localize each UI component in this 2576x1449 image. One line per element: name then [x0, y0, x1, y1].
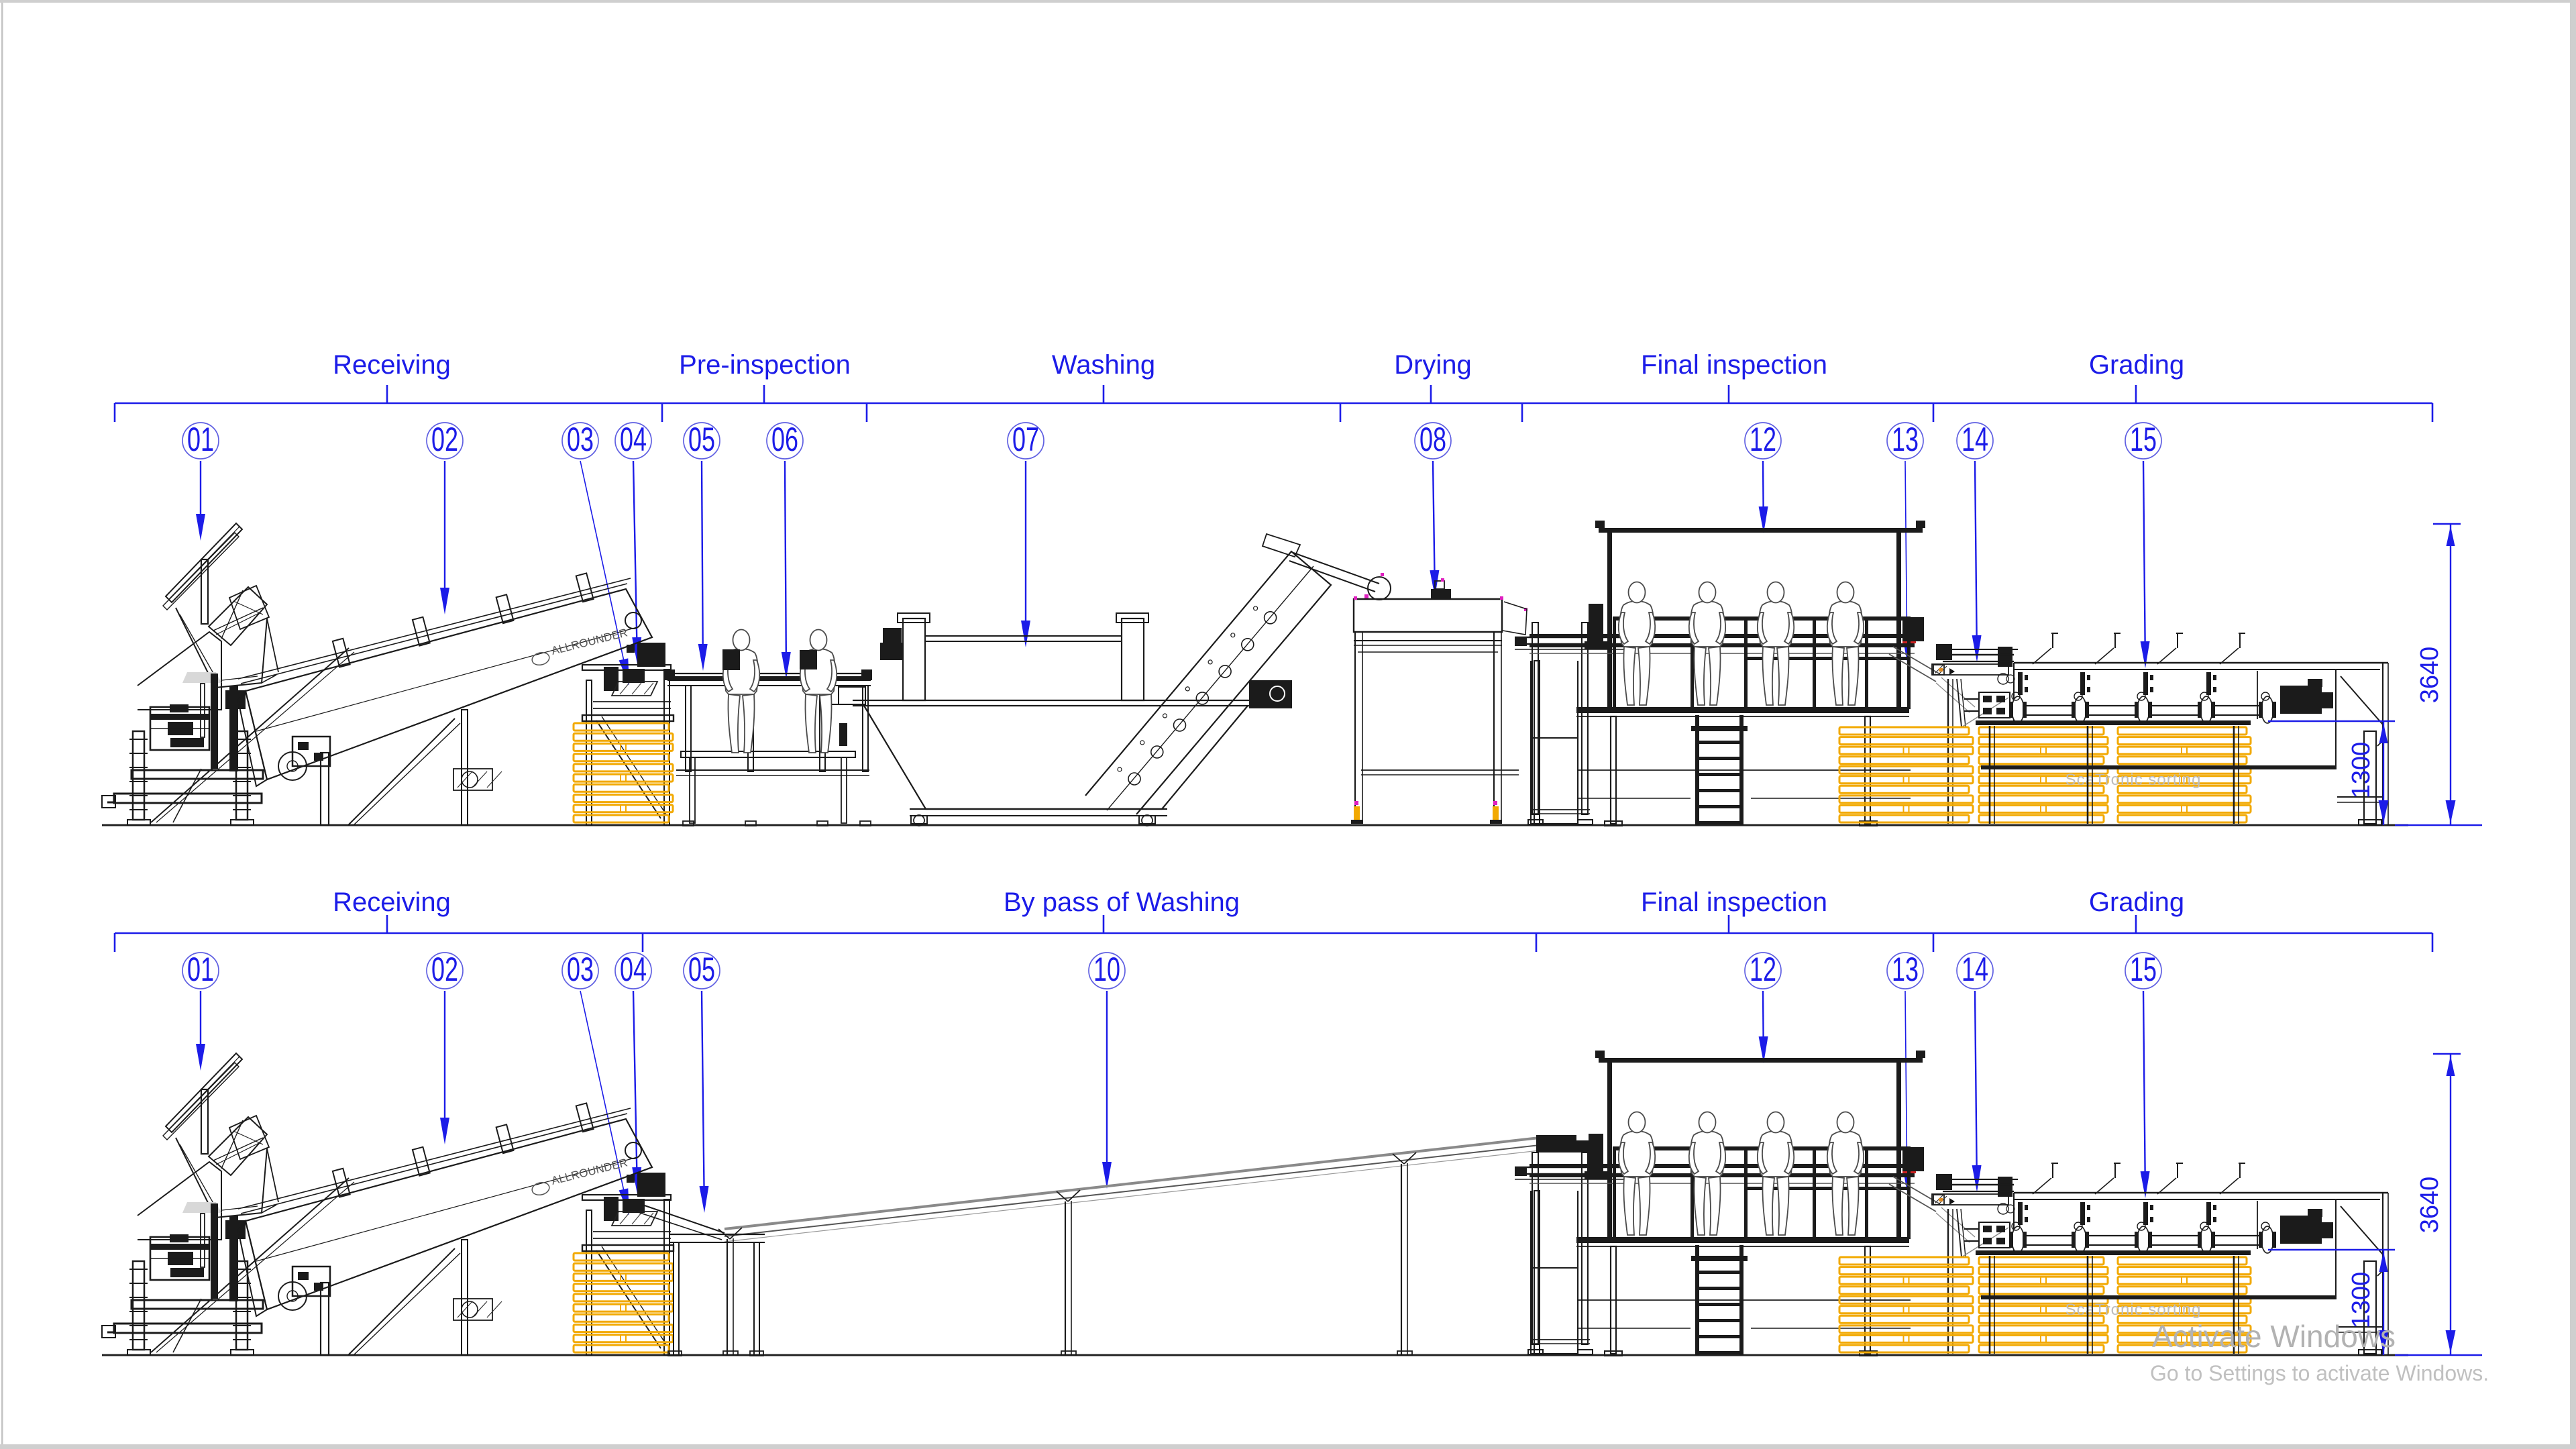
svg-text:Pre-inspection: Pre-inspection — [679, 350, 851, 380]
svg-text:10: 10 — [1093, 951, 1120, 988]
svg-text:04: 04 — [620, 421, 647, 458]
svg-text:Final inspection: Final inspection — [1641, 888, 1827, 917]
svg-text:1300: 1300 — [2347, 742, 2375, 799]
svg-text:01: 01 — [187, 951, 214, 988]
svg-text:3640: 3640 — [2416, 647, 2444, 704]
svg-text:06: 06 — [771, 421, 798, 458]
svg-text:Grading: Grading — [2089, 888, 2184, 917]
svg-text:15: 15 — [2130, 421, 2157, 458]
svg-text:02: 02 — [431, 951, 458, 988]
svg-text:Washing: Washing — [1052, 350, 1155, 380]
svg-text:Final inspection: Final inspection — [1641, 350, 1827, 380]
svg-text:Receiving: Receiving — [333, 350, 451, 380]
svg-text:04: 04 — [620, 951, 647, 988]
svg-text:07: 07 — [1012, 421, 1039, 458]
svg-text:12: 12 — [1750, 421, 1776, 458]
svg-text:08: 08 — [1419, 421, 1446, 458]
svg-text:Activate Windows: Activate Windows — [2152, 1319, 2396, 1354]
svg-text:05: 05 — [688, 951, 715, 988]
svg-text:By pass of Washing: By pass of Washing — [1004, 888, 1240, 917]
svg-text:02: 02 — [431, 421, 458, 458]
svg-text:14: 14 — [1962, 951, 1988, 988]
svg-text:Go to Settings to activate Win: Go to Settings to activate Windows. — [2150, 1361, 2489, 1385]
svg-text:12: 12 — [1750, 951, 1776, 988]
svg-text:Receiving: Receiving — [333, 888, 451, 917]
svg-text:03: 03 — [567, 421, 594, 458]
svg-text:03: 03 — [567, 951, 594, 988]
svg-text:14: 14 — [1962, 421, 1988, 458]
svg-text:13: 13 — [1892, 951, 1919, 988]
svg-text:Drying: Drying — [1394, 350, 1472, 380]
svg-text:01: 01 — [187, 421, 214, 458]
svg-text:15: 15 — [2130, 951, 2157, 988]
svg-text:3640: 3640 — [2416, 1177, 2444, 1234]
svg-text:05: 05 — [688, 421, 715, 458]
svg-text:13: 13 — [1892, 421, 1919, 458]
svg-text:Grading: Grading — [2089, 350, 2184, 380]
